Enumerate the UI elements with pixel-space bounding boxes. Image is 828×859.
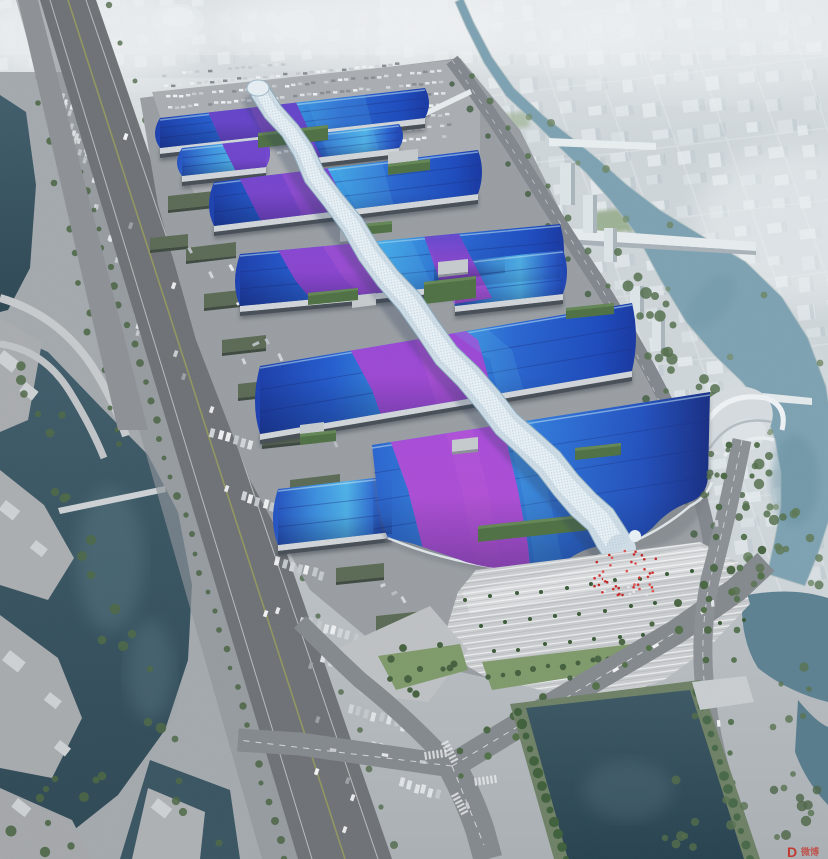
svg-text:D: D — [787, 844, 797, 859]
svg-text:微博: 微博 — [800, 846, 819, 857]
